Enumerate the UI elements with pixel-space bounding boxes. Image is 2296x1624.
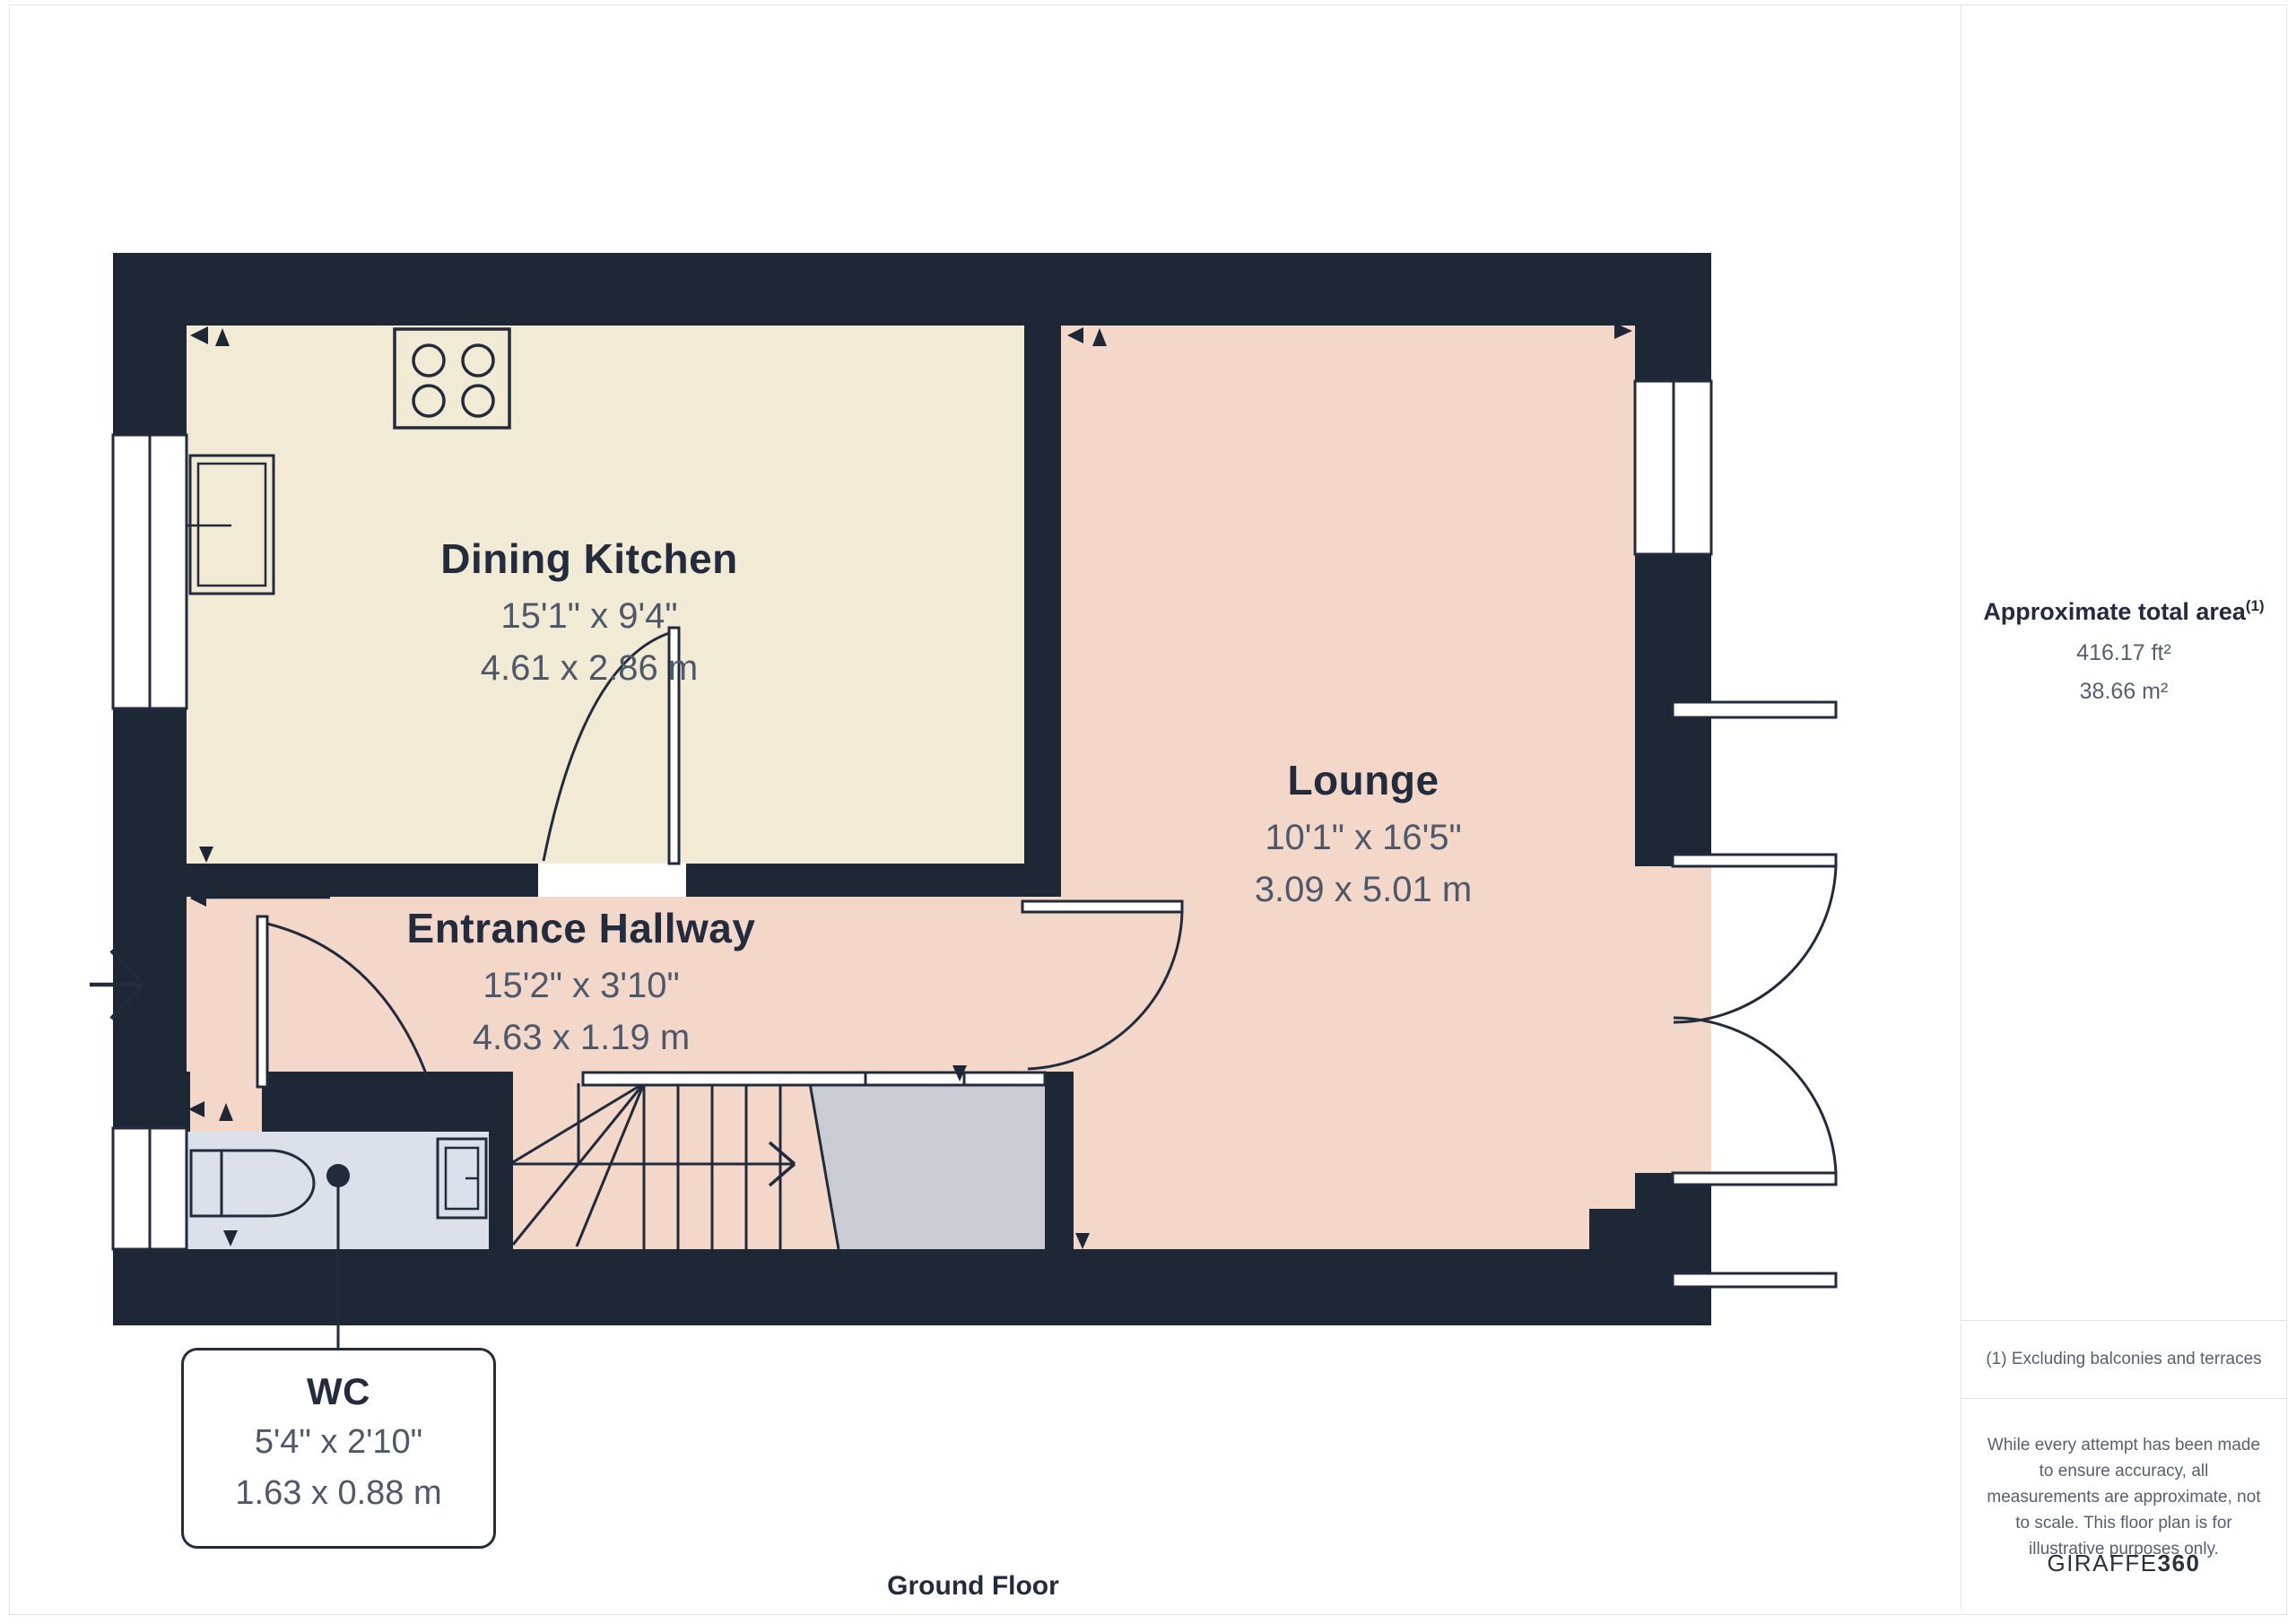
wall-top — [113, 253, 1711, 326]
total-area-ft: 416.17 ft² — [1961, 640, 2287, 666]
wall-kitchen-hall-left — [187, 864, 538, 897]
footnote-text: (1) Excluding balconies and terraces — [1986, 1350, 2261, 1369]
wall-storage-lounge — [1045, 1072, 1074, 1249]
lounge-door-leaf — [1022, 901, 1182, 912]
room-name: Dining Kitchen — [440, 534, 738, 583]
french-door-sidelight-bottom — [1673, 1273, 1836, 1287]
wall-wc-top-left — [113, 1072, 190, 1132]
french-door-leaf-top — [1673, 855, 1836, 866]
total-area-title: Approximate total area(1) — [1961, 597, 2287, 626]
wall-kitchen-hall-right — [686, 864, 1024, 897]
brand-name: GIRAFFE — [2047, 1550, 2157, 1576]
hallway-label: Entrance Hallway 15'2" x 3'10" 4.63 x 1.… — [407, 904, 756, 1064]
room-dim-metric: 4.61 x 2.86 m — [440, 642, 738, 694]
sidebar: Approximate total area(1) 416.17 ft² 38.… — [1961, 0, 2287, 1624]
toilet-icon — [222, 1151, 314, 1216]
wc-door-threshold — [190, 1072, 262, 1132]
wall-lounge-corner-step — [1589, 1209, 1635, 1249]
total-area-superscript: (1) — [2246, 597, 2265, 614]
wall-bottom — [113, 1249, 1711, 1325]
footnote: (1) Excluding balconies and terraces — [1961, 1320, 2287, 1399]
toilet-cistern-icon — [191, 1151, 222, 1216]
floor-title: Ground Floor — [749, 1571, 1197, 1602]
room-name: Lounge — [1255, 756, 1472, 804]
room-dim-metric: 3.09 x 5.01 m — [1255, 864, 1472, 916]
wall-wc-top-right — [262, 1072, 489, 1132]
brand-suffix: 360 — [2158, 1550, 2201, 1576]
total-area-m: 38.66 m² — [1961, 679, 2287, 705]
french-door-leaf-bottom — [1673, 1173, 1836, 1185]
room-dim-imperial: 15'1" x 9'4" — [440, 590, 738, 642]
room-dim-imperial: 10'1" x 16'5" — [1255, 812, 1472, 864]
stove-icon — [395, 329, 509, 428]
total-area-title-text: Approximate total area — [1983, 598, 2246, 625]
kitchen-label: Dining Kitchen 15'1" x 9'4" 4.61 x 2.86 … — [440, 534, 738, 695]
room-dim-metric: 1.63 x 0.88 m — [184, 1468, 493, 1519]
room-name: WC — [184, 1370, 493, 1413]
french-door-sidelight-top — [1673, 702, 1836, 717]
disclaimer: While every attempt has been made to ens… — [1961, 1433, 2287, 1562]
giraffe360-logo: GIRAFFE360 — [1961, 1550, 2287, 1577]
total-area-block: Approximate total area(1) 416.17 ft² 38.… — [1961, 597, 2287, 717]
room-dim-metric: 4.63 x 1.19 m — [407, 1012, 756, 1064]
front-door-leaf — [257, 916, 267, 1087]
stairs-rail — [583, 1073, 1045, 1085]
room-dim-imperial: 15'2" x 3'10" — [407, 960, 756, 1012]
wall-wc-right — [489, 1072, 513, 1249]
room-name: Entrance Hallway — [407, 904, 756, 952]
understairs-storage-floor — [810, 1083, 1045, 1249]
room-dim-imperial: 5'4" x 2'10" — [184, 1417, 493, 1468]
lounge-label: Lounge 10'1" x 16'5" 3.09 x 5.01 m — [1255, 756, 1472, 916]
wall-kitchen-lounge — [1024, 326, 1061, 897]
wc-callout: WC 5'4" x 2'10" 1.63 x 0.88 m — [181, 1348, 496, 1549]
